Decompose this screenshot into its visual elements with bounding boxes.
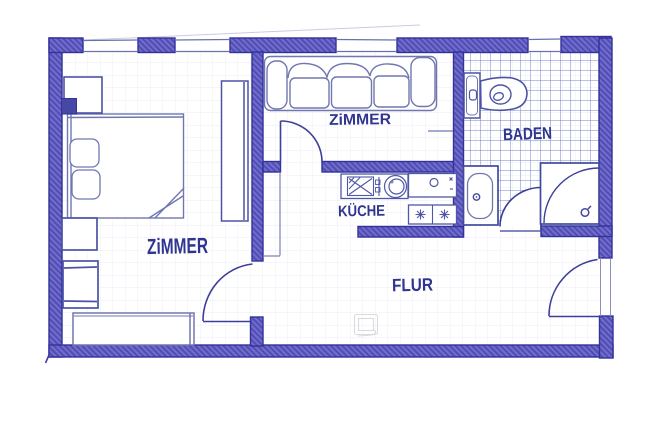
- svg-text:ZiMMER: ZiMMER: [329, 111, 391, 129]
- svg-text:ZiMMER: ZiMMER: [147, 233, 209, 259]
- svg-text:FLUR: FLUR: [392, 275, 433, 296]
- svg-text:KÜCHE: KÜCHE: [338, 203, 385, 221]
- svg-text:BADEN: BADEN: [503, 124, 553, 145]
